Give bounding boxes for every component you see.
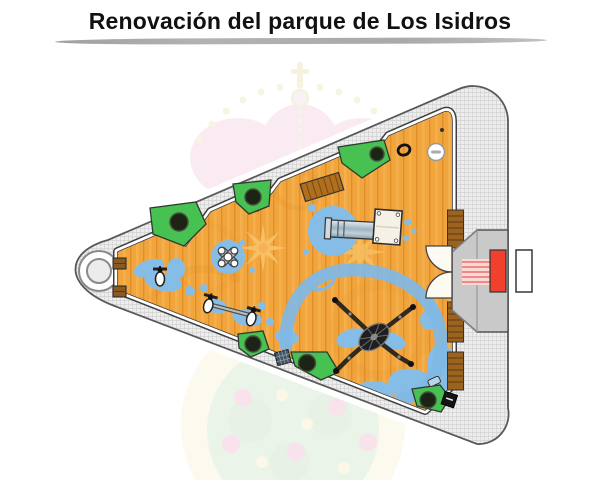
tree-icon xyxy=(170,213,188,231)
park-plan-canvas xyxy=(0,0,600,480)
sign-panel xyxy=(516,250,532,292)
tree-icon xyxy=(420,392,436,408)
crosswalk-stripes xyxy=(462,259,490,285)
corner-dot xyxy=(440,128,444,132)
tree-icon xyxy=(245,336,261,352)
platform xyxy=(373,209,402,245)
wooden-bench-right xyxy=(448,210,464,248)
page: Renovación del parque de Los Isidros xyxy=(0,0,600,480)
entrance-vestibule xyxy=(452,230,508,332)
entrance-gate xyxy=(490,250,506,292)
tree-icon xyxy=(245,189,261,205)
tree-icon xyxy=(370,147,384,161)
tree-icon xyxy=(299,355,316,372)
minus-sign-marker xyxy=(428,144,445,161)
wooden-bench-right xyxy=(448,352,464,390)
